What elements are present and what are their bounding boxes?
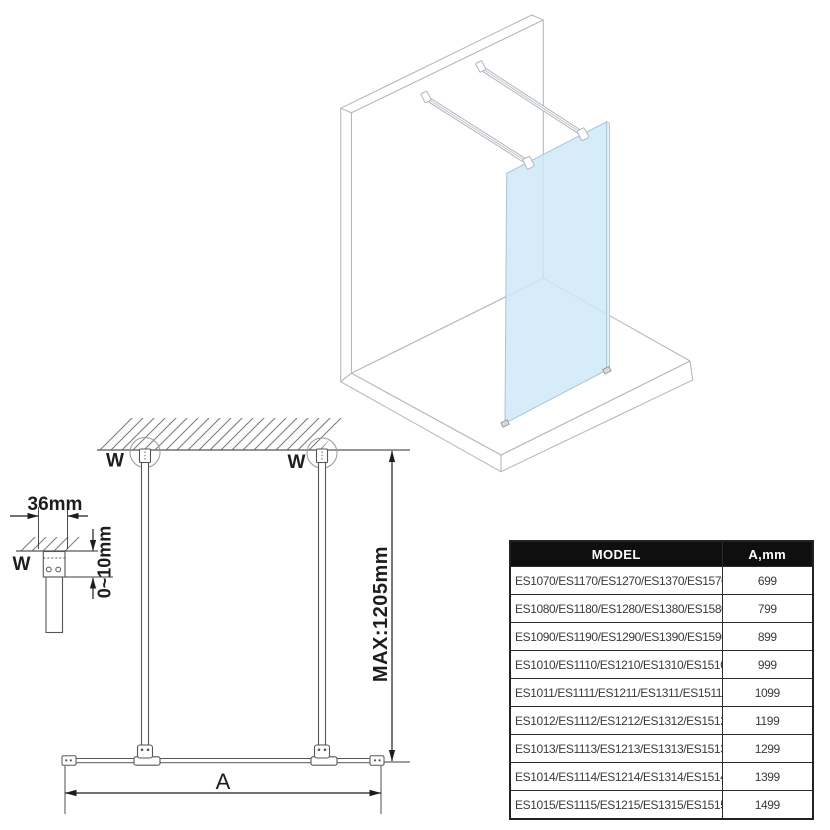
plan-view: W W A MAX:1205mm <box>10 418 410 814</box>
glass-end-cap-right <box>370 756 384 765</box>
table-row: ES1080/ES1180/ES1280/ES1380/ES1580 799 <box>510 595 813 623</box>
width-cell: 999 <box>722 651 813 679</box>
width-cell: 1299 <box>722 735 813 763</box>
bar-clamp-left <box>138 745 153 758</box>
table-row: ES1015/ES1115/ES1215/ES1315/ES1515 1499 <box>510 791 813 820</box>
table-row: ES1010/ES1110/ES1210/ES1310/ES1510 999 <box>510 651 813 679</box>
model-cell: ES1070/ES1170/ES1270/ES1370/ES1570 <box>510 567 722 595</box>
dimension-max-length: MAX:1205mm <box>370 451 410 763</box>
dim-label-a: A <box>216 769 231 794</box>
spec-table: MODEL A,mm ES1070/ES1170/ES1270/ES1370/E… <box>509 540 814 820</box>
wall-bracket-left <box>140 449 151 463</box>
width-cell: 699 <box>722 567 813 595</box>
table-row: ES1012/ES1112/ES1212/ES1312/ES1512 1199 <box>510 707 813 735</box>
dimension-adjust-gap: 0~10mm <box>65 526 115 599</box>
model-cell: ES1013/ES1113/ES1213/ES1313/ES1513 <box>510 735 722 763</box>
model-cell: ES1090/ES1190/ES1290/ES1390/ES1590 <box>510 623 722 651</box>
table-row: ES1070/ES1170/ES1270/ES1370/ES1570 699 <box>510 567 813 595</box>
detail-bar-stub <box>46 577 63 633</box>
width-column-header: A,mm <box>722 541 813 567</box>
model-cell: ES1014/ES1114/ES1214/ES1314/ES1514 <box>510 763 722 791</box>
width-cell: 899 <box>722 623 813 651</box>
width-cell: 1099 <box>722 679 813 707</box>
wall-bracket-right <box>317 449 328 463</box>
width-cell: 1199 <box>722 707 813 735</box>
glass-edge <box>607 122 610 372</box>
width-cell: 1399 <box>722 763 813 791</box>
table-row: ES1014/ES1114/ES1214/ES1314/ES1514 1399 <box>510 763 813 791</box>
support-bar-left-2d <box>142 463 149 746</box>
detail-hatch <box>16 537 87 551</box>
width-cell: 799 <box>722 595 813 623</box>
detail-bracket <box>43 552 65 578</box>
glass-face <box>505 122 607 424</box>
shower-panel-installation-diagram: W W A MAX:1205mm <box>0 0 830 830</box>
dim-label-36mm: 36mm <box>28 494 83 515</box>
wall-hatch <box>97 418 348 450</box>
model-cell: ES1012/ES1112/ES1212/ES1312/ES1512 <box>510 707 722 735</box>
table-header-row: MODEL A,mm <box>510 541 813 567</box>
model-cell: ES1010/ES1110/ES1210/ES1310/ES1510 <box>510 651 722 679</box>
table-row: ES1090/ES1190/ES1290/ES1390/ES1590 899 <box>510 623 813 651</box>
model-cell: ES1015/ES1115/ES1215/ES1315/ES1515 <box>510 791 722 820</box>
dimension-glass-width: A <box>65 766 381 814</box>
bar-clamp-right <box>315 745 330 758</box>
glass-end-cap-left <box>62 756 76 765</box>
dim-label-max: MAX:1205mm <box>370 546 392 682</box>
dim-label-0-10mm: 0~10mm <box>95 526 115 599</box>
model-cell: ES1080/ES1180/ES1280/ES1380/ES1580 <box>510 595 722 623</box>
table-row: ES1013/ES1113/ES1213/ES1313/ES1513 1299 <box>510 735 813 763</box>
model-column-header: MODEL <box>510 541 722 567</box>
bracket-detail: W 36mm 0~10mm <box>10 494 115 633</box>
wall-marker-label-right: W <box>288 452 306 473</box>
wall-marker-label-detail: W <box>13 554 31 575</box>
isometric-view <box>341 15 693 472</box>
table-row: ES1011/ES1111/ES1211/ES1311/ES1511 1099 <box>510 679 813 707</box>
model-cell: ES1011/ES1111/ES1211/ES1311/ES1511 <box>510 679 722 707</box>
width-cell: 1499 <box>722 791 813 820</box>
support-bar-right-2d <box>319 463 326 746</box>
wall-marker-label-left: W <box>106 451 124 472</box>
